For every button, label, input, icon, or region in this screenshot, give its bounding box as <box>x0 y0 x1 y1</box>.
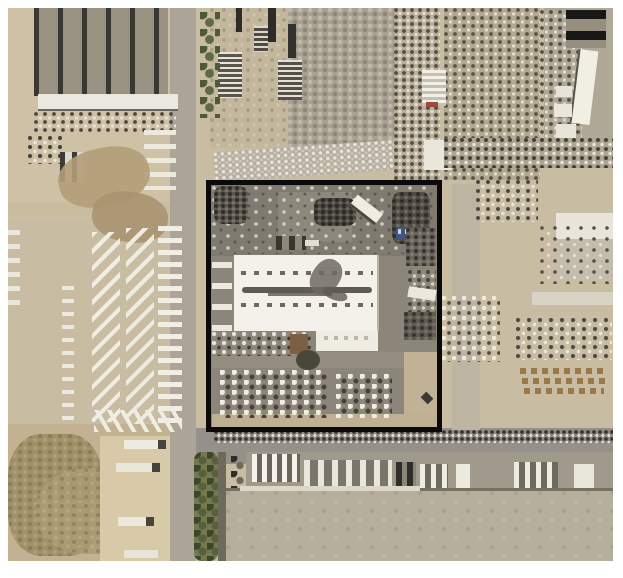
white-unit-1 <box>556 86 572 97</box>
trailer-dashes-west <box>62 286 74 420</box>
dock-clutter-topleft <box>34 112 176 132</box>
dock-trailers-4 <box>514 462 558 490</box>
edge-trucks-far-left <box>8 230 20 308</box>
distribution-warehouse-roof <box>226 488 613 561</box>
box-truck-1-cab <box>158 440 166 449</box>
vehicle-cluster-r1 <box>476 180 538 222</box>
screenshot-canvas <box>0 0 623 578</box>
red-container <box>426 102 438 107</box>
box-truck-4 <box>124 550 158 558</box>
dock-trailer-single-1 <box>456 464 470 490</box>
ribbed-stack-1 <box>218 52 242 98</box>
ribbed-stack-3 <box>254 26 268 52</box>
dock-trailers-1 <box>252 454 300 482</box>
trailer-row-b <box>126 228 154 424</box>
white-building-long <box>38 94 178 111</box>
trucks-cluster-a <box>28 136 62 164</box>
dark-bar-2 <box>288 24 296 58</box>
trailer-row-c <box>158 226 182 430</box>
trailer-row-bottom <box>94 410 182 432</box>
white-unit-2 <box>554 104 572 117</box>
ribbed-stack-2 <box>278 60 302 100</box>
white-unit-3 <box>556 124 576 138</box>
trucks-by-road <box>144 130 176 190</box>
box-truck-2-cab <box>152 463 160 472</box>
truck-row-mid-right <box>444 138 613 168</box>
dock-trailer-single-2 <box>574 464 594 490</box>
box-truck-1 <box>124 440 162 449</box>
pallet-row-2 <box>522 378 608 384</box>
tree-line-bottom <box>194 452 218 561</box>
property-boundary <box>206 180 442 432</box>
concrete-pad-top <box>288 8 396 148</box>
tree-shadow-strip <box>218 452 226 561</box>
vehicle-cluster-r2 <box>516 318 612 360</box>
white-band-right <box>532 292 613 305</box>
vehicle-cluster-r3 <box>442 296 500 362</box>
white-shed <box>422 70 446 106</box>
tree-line-top <box>200 12 220 118</box>
box-truck-3-cab <box>146 517 154 526</box>
trailer-row-a <box>92 232 120 422</box>
vehicle-scatter-r4 <box>540 226 610 284</box>
aerial-photo <box>8 8 613 561</box>
pallet-row-1 <box>520 368 608 374</box>
warehouse-roof-highlight <box>240 486 420 491</box>
dark-bar-3 <box>236 8 242 32</box>
pallet-row-3 <box>524 388 604 394</box>
dark-roof-bars <box>566 10 606 48</box>
warehouse-rows-roof <box>34 8 168 96</box>
dock-trailers-3 <box>420 464 448 490</box>
dark-bar-1 <box>268 8 276 42</box>
